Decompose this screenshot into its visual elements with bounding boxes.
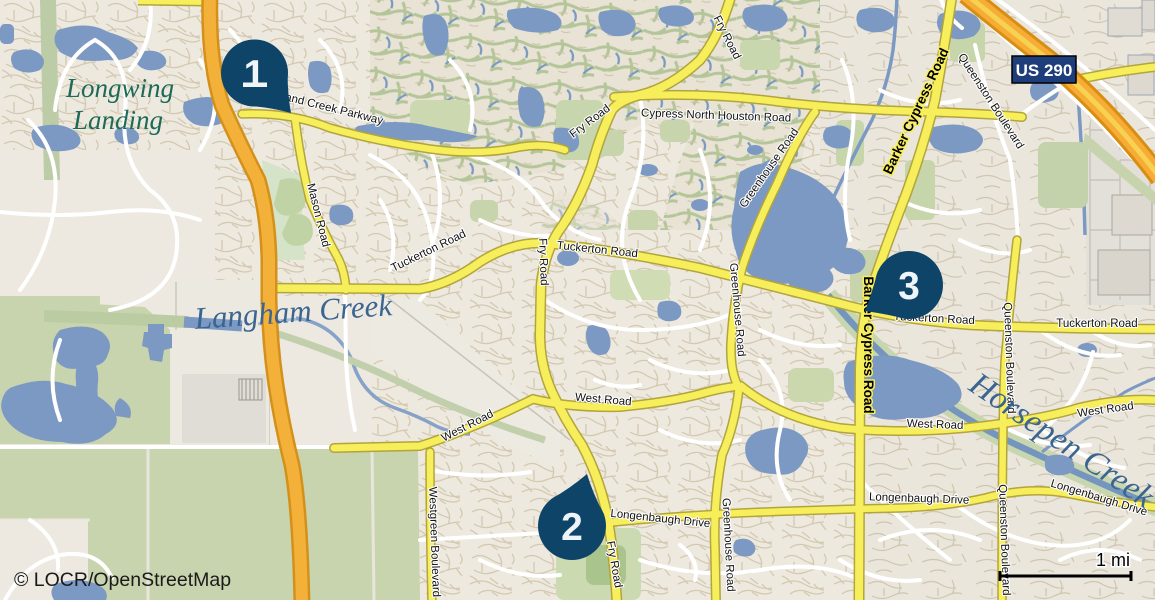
svg-text:Longwing: Longwing	[65, 73, 174, 103]
svg-text:© LOCR/OpenStreetMap: © LOCR/OpenStreetMap	[14, 569, 231, 591]
svg-text:Tuckerton Road: Tuckerton Road	[1056, 318, 1137, 330]
svg-text:1 mi: 1 mi	[1096, 550, 1130, 570]
svg-text:US 290: US 290	[1016, 61, 1073, 80]
svg-text:3: 3	[898, 265, 920, 308]
svg-text:West Road: West Road	[907, 418, 964, 432]
svg-text:2: 2	[561, 506, 583, 549]
svg-text:1: 1	[244, 53, 266, 96]
svg-text:Landing: Landing	[72, 105, 163, 135]
svg-text:Fry Road: Fry Road	[536, 238, 550, 286]
